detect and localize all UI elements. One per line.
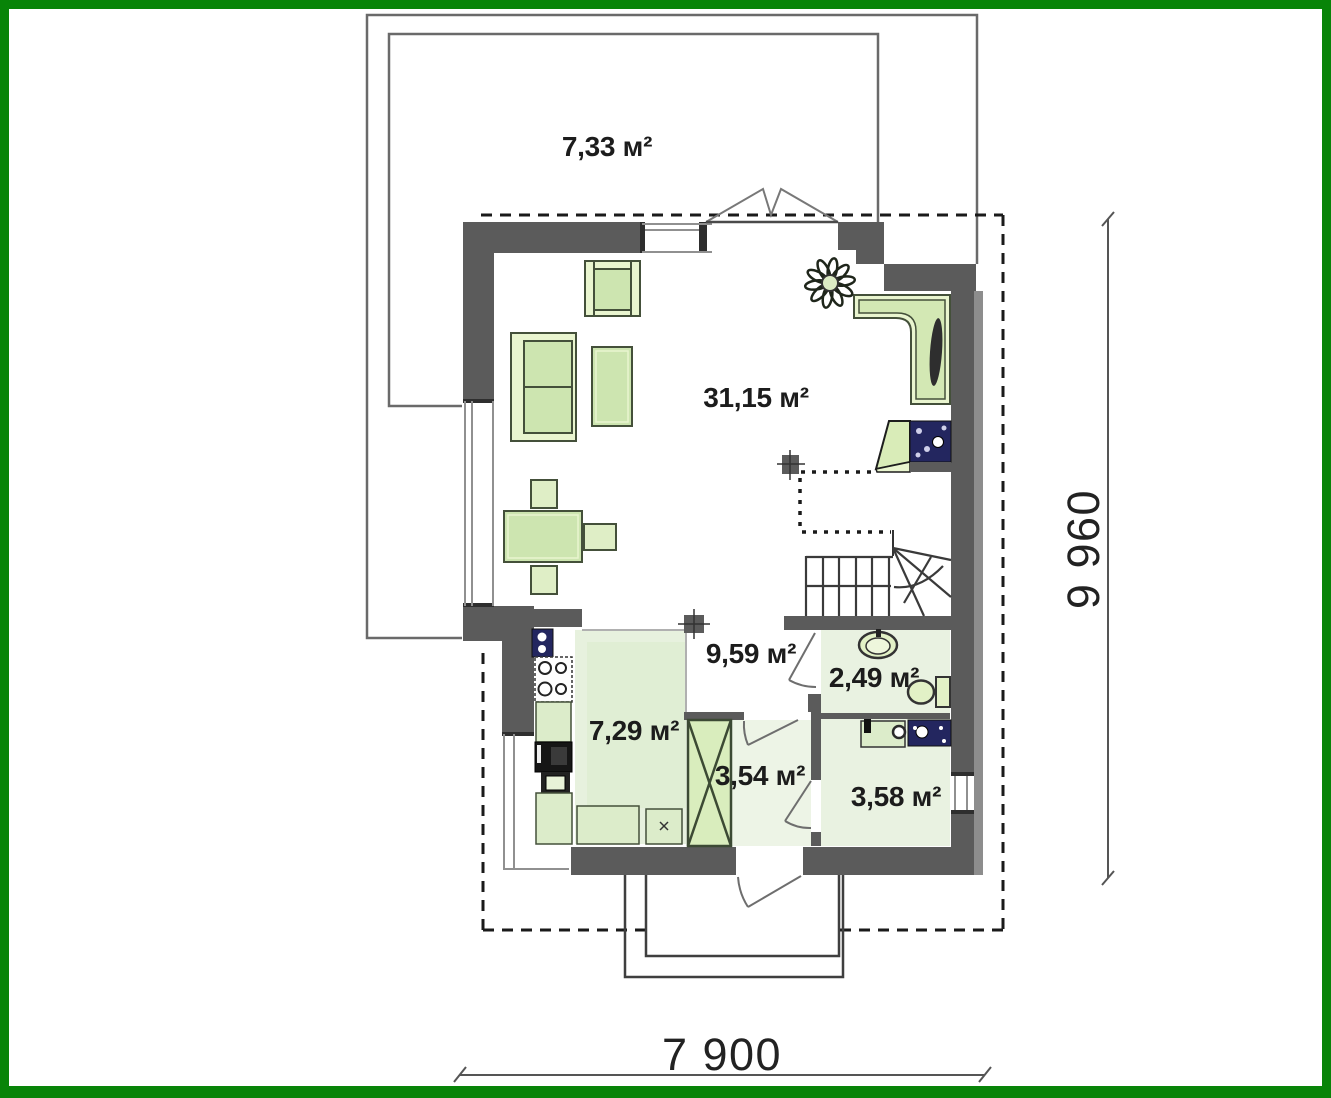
svg-text:7,33 м²: 7,33 м²	[562, 131, 652, 162]
svg-text:3,54 м²: 3,54 м²	[715, 760, 805, 791]
svg-text:7 900: 7 900	[662, 1029, 782, 1080]
svg-text:31,15 м²: 31,15 м²	[703, 382, 809, 413]
svg-text:3,58 м²: 3,58 м²	[851, 781, 941, 812]
svg-text:9,59 м²: 9,59 м²	[706, 638, 796, 669]
svg-text:7,29 м²: 7,29 м²	[589, 715, 679, 746]
svg-text:2,49 м²: 2,49 м²	[829, 662, 919, 693]
svg-text:9 960: 9 960	[1058, 489, 1109, 609]
